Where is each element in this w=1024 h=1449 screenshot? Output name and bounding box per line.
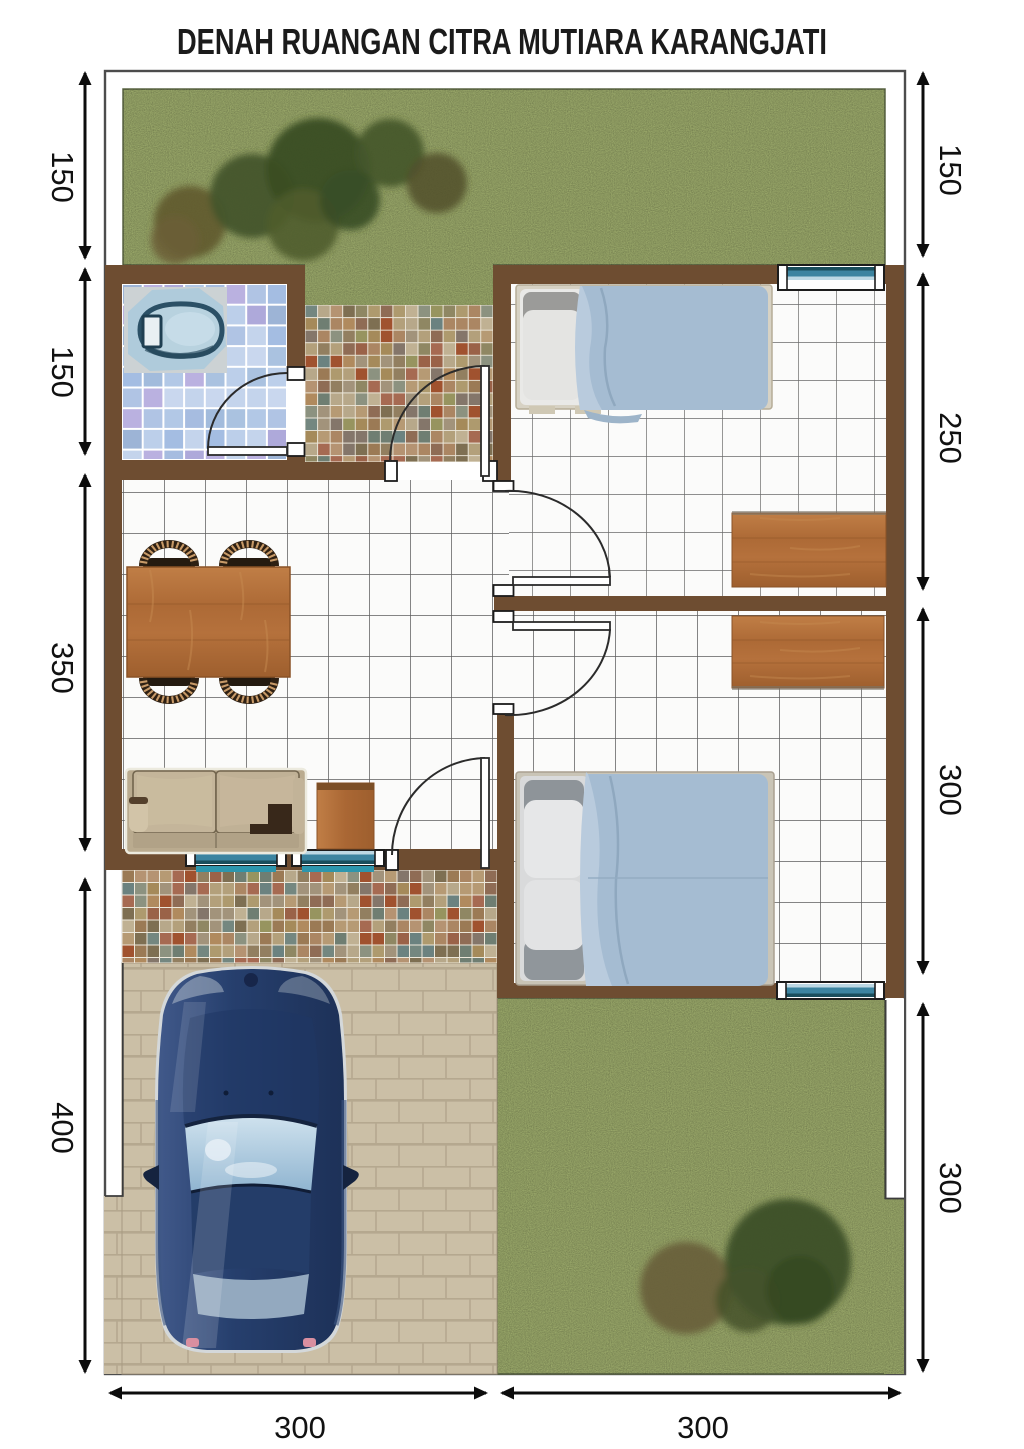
svg-text:400: 400: [45, 1102, 80, 1154]
svg-text:300: 300: [274, 1410, 326, 1445]
svg-text:150: 150: [933, 144, 968, 196]
svg-text:150: 150: [45, 346, 80, 398]
svg-text:300: 300: [677, 1410, 729, 1445]
svg-text:300: 300: [933, 1162, 968, 1214]
svg-text:250: 250: [933, 412, 968, 464]
svg-text:300: 300: [933, 764, 968, 816]
svg-text:DENAH RUANGAN CITRA MUTIARA KA: DENAH RUANGAN CITRA MUTIARA KARANGJATI: [177, 21, 827, 62]
svg-text:150: 150: [45, 151, 80, 203]
svg-text:350: 350: [45, 642, 80, 694]
